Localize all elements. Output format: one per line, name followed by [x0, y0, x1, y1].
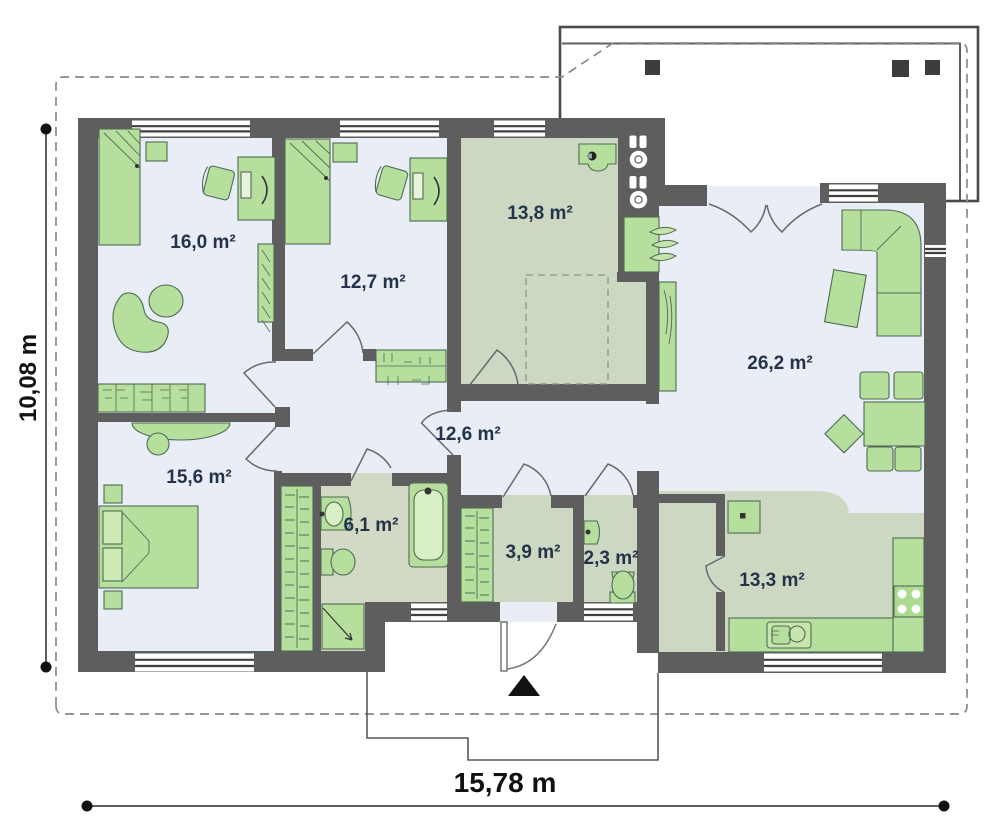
- svg-text:15,6 m²: 15,6 m²: [166, 467, 231, 488]
- svg-text:3,9 m²: 3,9 m²: [506, 542, 561, 563]
- svg-text:13,8 m²: 13,8 m²: [507, 203, 572, 224]
- svg-text:26,2 m²: 26,2 m²: [747, 353, 812, 374]
- svg-text:12,7 m²: 12,7 m²: [340, 272, 405, 293]
- svg-text:6,1 m²: 6,1 m²: [344, 515, 399, 536]
- svg-text:13,3 m²: 13,3 m²: [739, 570, 804, 591]
- svg-text:2,3 m²: 2,3 m²: [584, 548, 639, 569]
- svg-text:16,0 m²: 16,0 m²: [170, 232, 235, 253]
- svg-text:15,78 m: 15,78 m: [454, 767, 557, 798]
- svg-text:10,08 m: 10,08 m: [15, 334, 42, 422]
- svg-text:12,6 m²: 12,6 m²: [435, 424, 500, 445]
